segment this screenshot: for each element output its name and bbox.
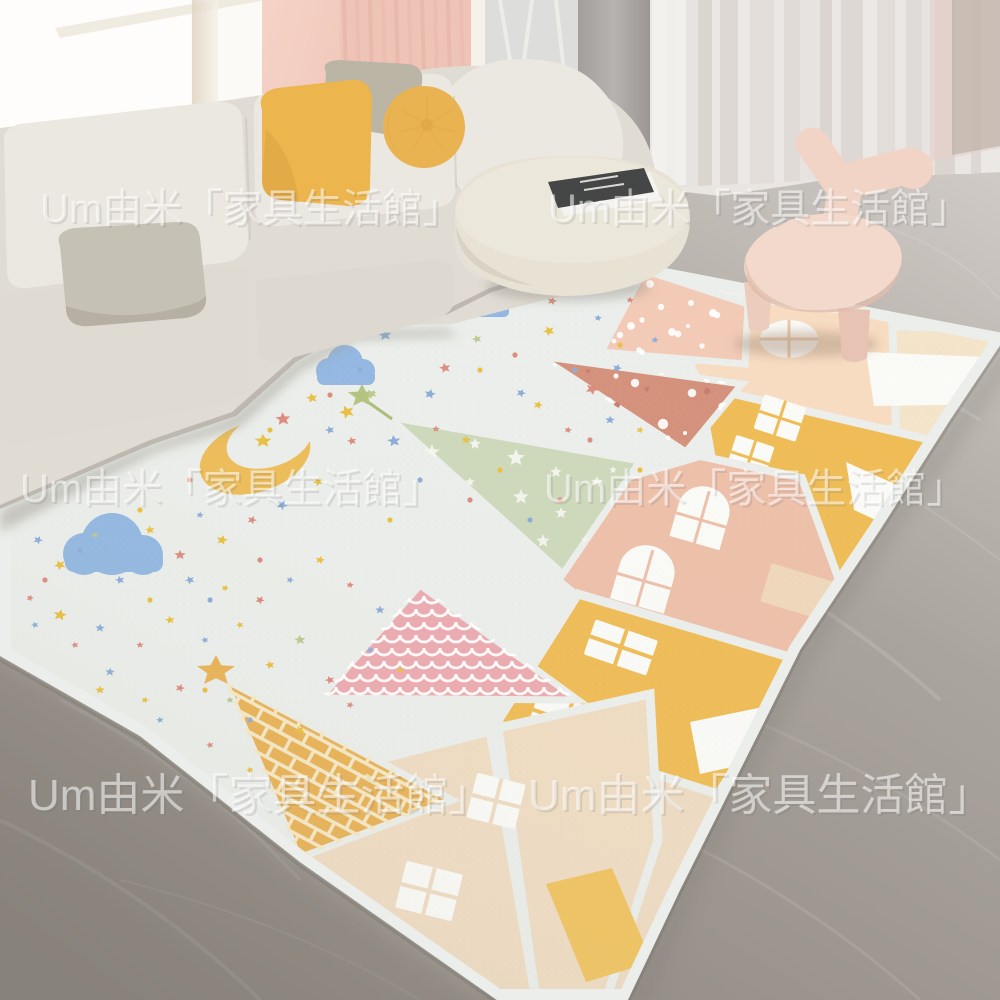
svg-text:Um由米「家具生活館」: Um由米「家具生活館」 [20, 467, 442, 511]
svg-text:Um由米「家具生活館」: Um由米「家具生活館」 [544, 467, 966, 511]
svg-text:Um由米「家具生活館」: Um由米「家具生活館」 [40, 187, 462, 231]
svg-text:Um由米「家具生活館」: Um由米「家具生活館」 [28, 771, 492, 820]
svg-text:Um由米「家具生活館」: Um由米「家具生活館」 [528, 771, 992, 820]
svg-text:Um由米「家具生活館」: Um由米「家具生活館」 [548, 187, 970, 231]
